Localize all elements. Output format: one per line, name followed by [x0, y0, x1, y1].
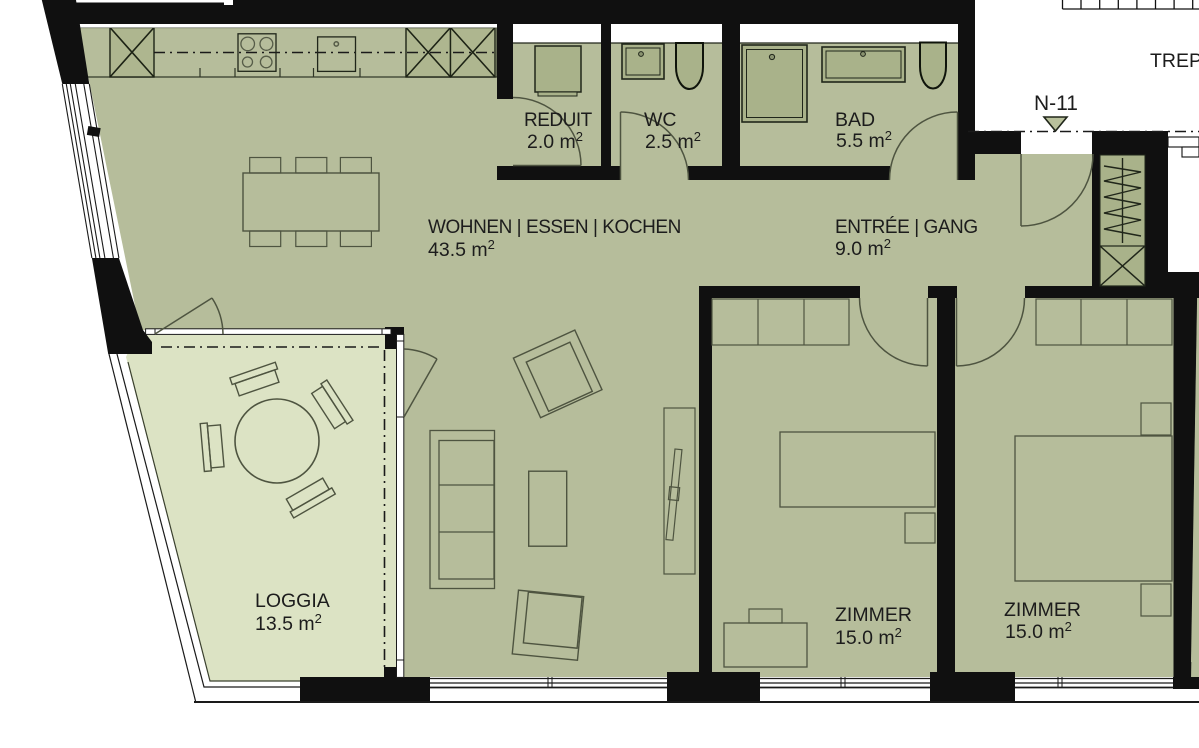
svg-text:ZIMMER: ZIMMER [1004, 599, 1081, 621]
svg-text:WOHNEN | ESSEN | KOCHEN: WOHNEN | ESSEN | KOCHEN [428, 217, 681, 238]
svg-text:5.5 m2: 5.5 m2 [836, 128, 892, 152]
svg-text:2.5 m2: 2.5 m2 [645, 129, 701, 153]
svg-text:BAD: BAD [835, 109, 875, 131]
svg-text:WC: WC [644, 109, 677, 131]
svg-text:9.0 m2: 9.0 m2 [835, 236, 891, 260]
svg-text:ZIMMER: ZIMMER [835, 604, 912, 626]
svg-text:LOGGIA: LOGGIA [255, 590, 330, 612]
svg-text:43.5 m2: 43.5 m2 [428, 237, 495, 261]
svg-text:TREPPENHAUS: TREPPENHAUS [1150, 50, 1199, 72]
svg-text:15.0 m2: 15.0 m2 [1005, 619, 1072, 643]
svg-text:ENTRÉE | GANG: ENTRÉE | GANG [835, 217, 978, 238]
svg-text:REDUIT: REDUIT [524, 110, 593, 131]
svg-text:N-11: N-11 [1034, 92, 1078, 115]
svg-text:2.0 m2: 2.0 m2 [527, 129, 583, 153]
svg-text:13.5 m2: 13.5 m2 [255, 611, 322, 635]
svg-text:15.0 m2: 15.0 m2 [835, 625, 902, 649]
